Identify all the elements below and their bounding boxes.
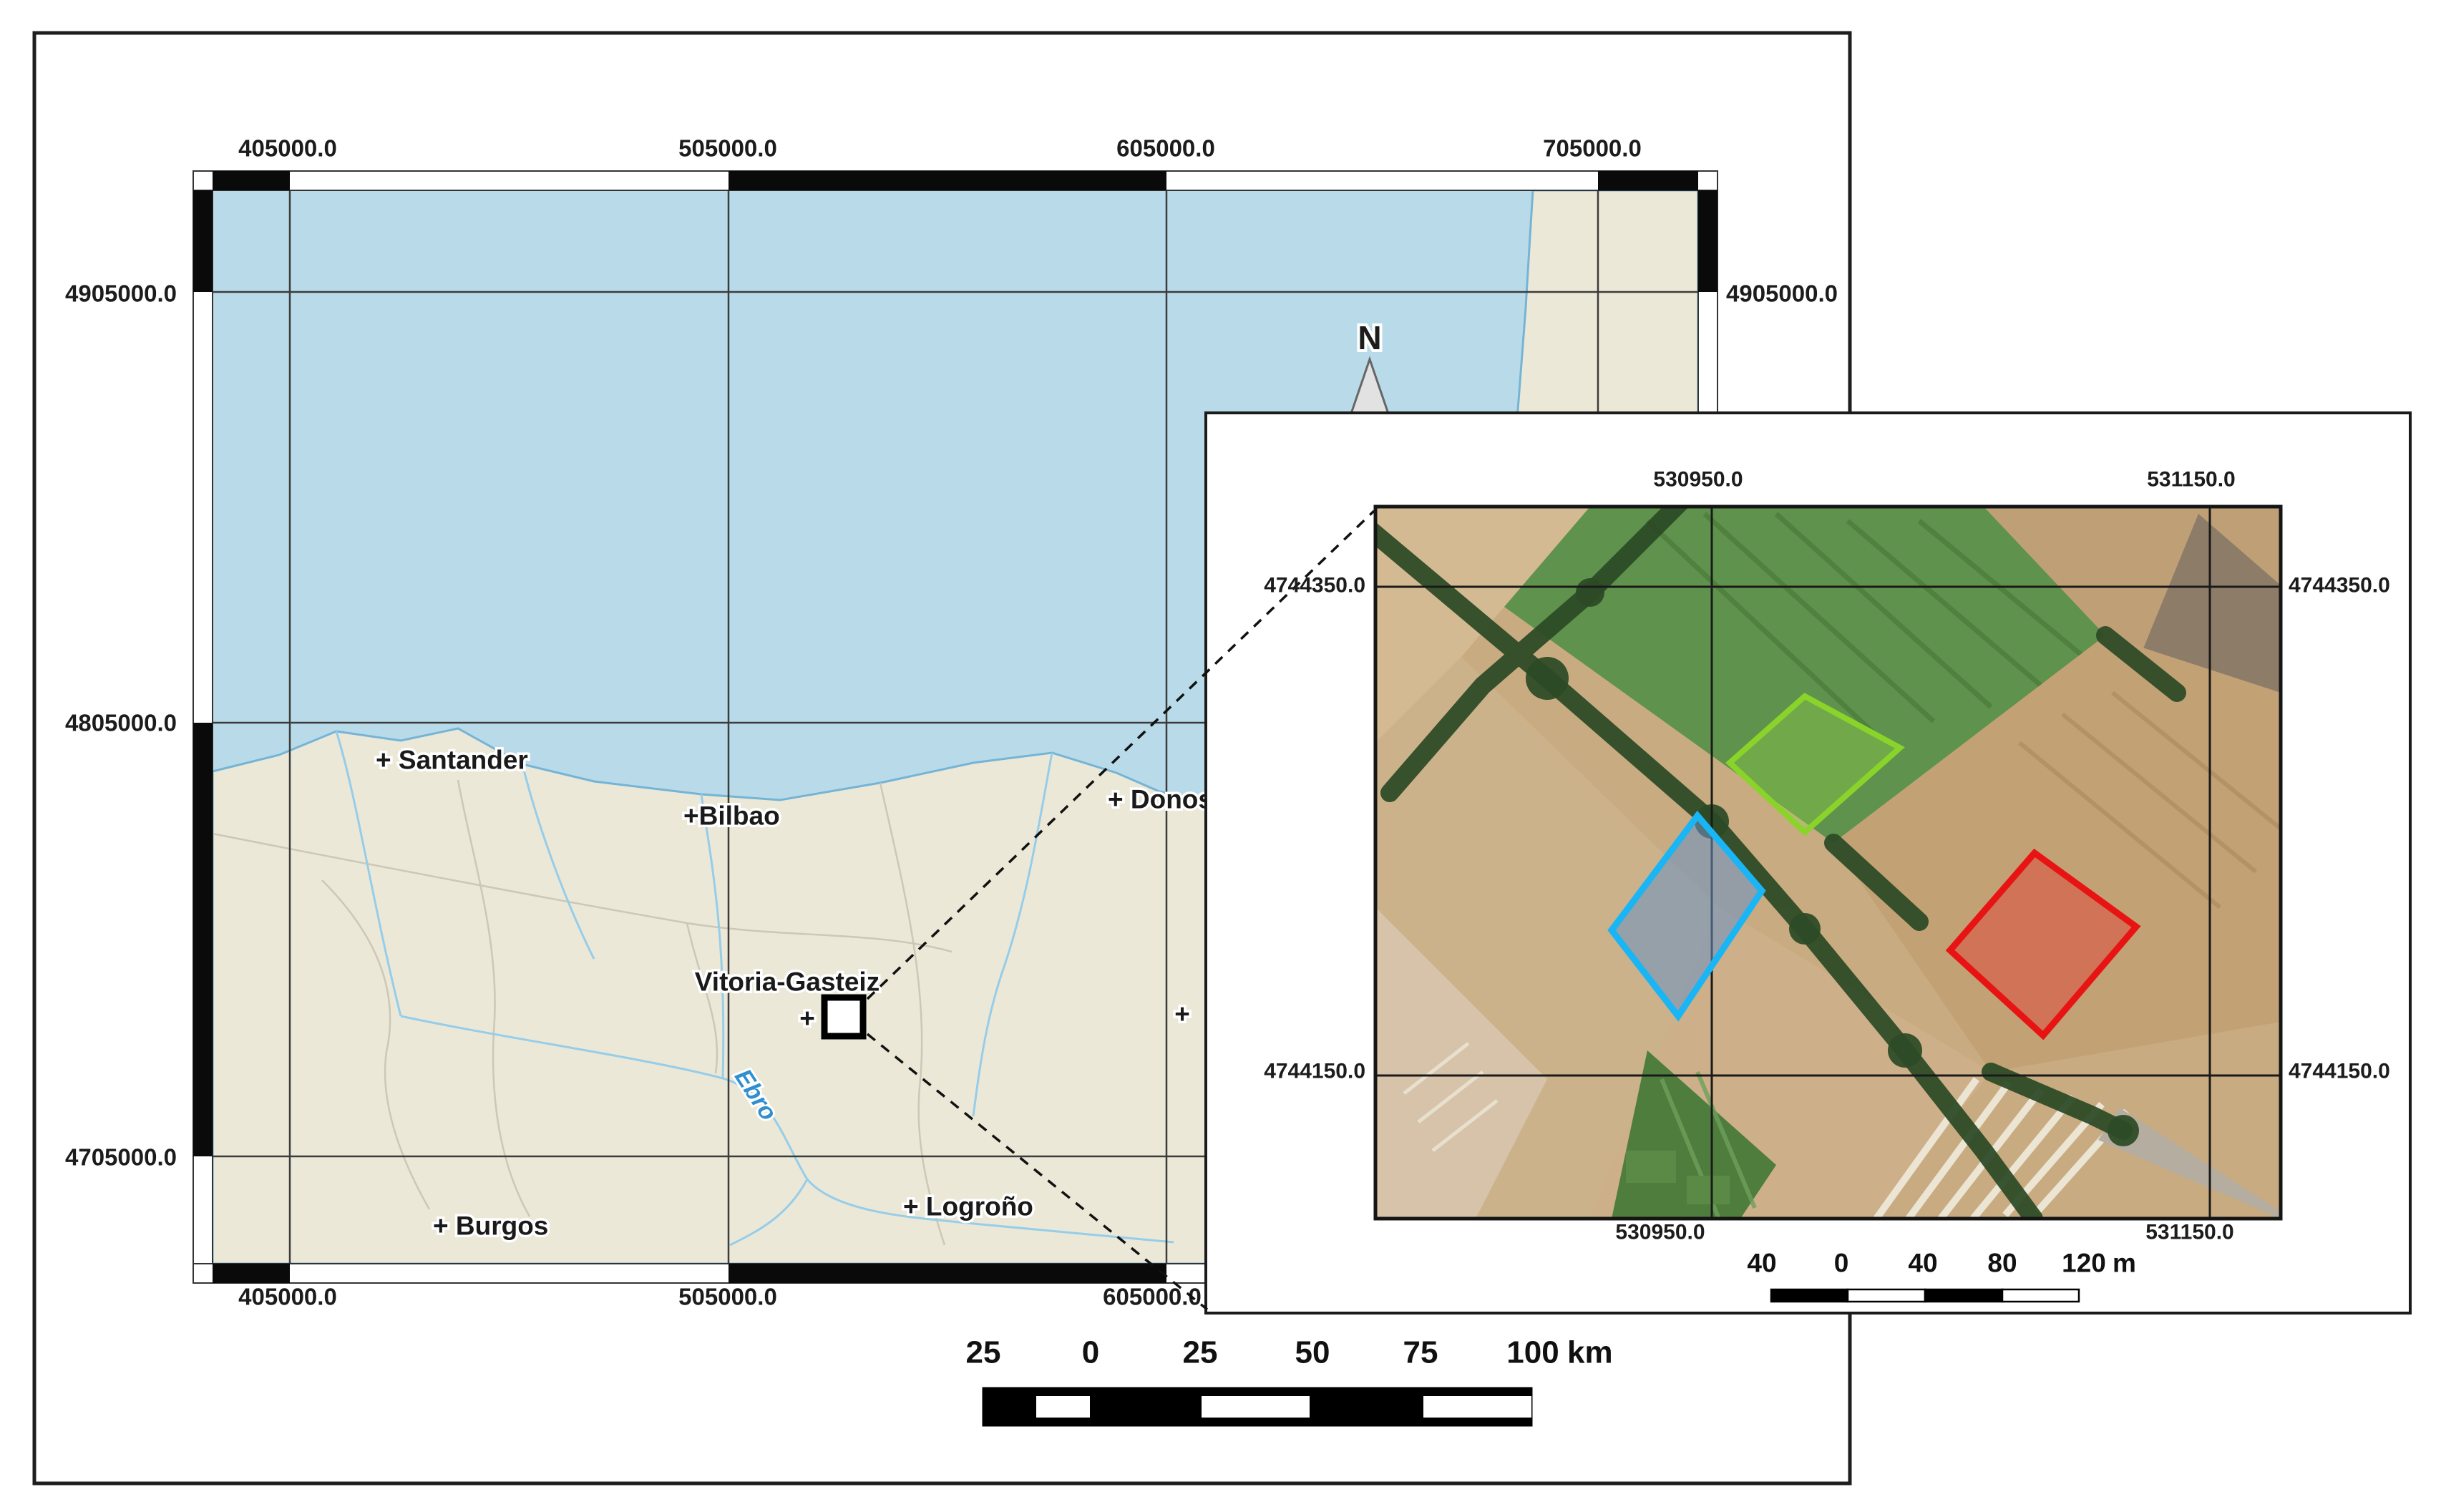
x-label-bottom-405000: 405000.0	[238, 1284, 337, 1310]
north-label: N	[1358, 319, 1381, 356]
study-area-marker	[824, 998, 863, 1036]
city-label-bilbao: +Bilbao	[683, 801, 780, 831]
inset-x-label-top-531150: 531150.0	[2147, 468, 2235, 492]
km-bar-window-2	[1202, 1396, 1310, 1418]
inset-aerial-photo	[1368, 499, 2281, 1219]
city-label-burgos: + Burgos	[433, 1211, 548, 1241]
inset-x-label-top-530950: 530950.0	[1653, 468, 1743, 492]
m-label-80: 80	[1987, 1249, 2017, 1278]
x-label-top-405000: 405000.0	[238, 135, 337, 162]
y-label-left-4705000: 4705000.0	[65, 1144, 177, 1171]
km-label-75: 75	[1403, 1335, 1438, 1370]
m-bar-seg1	[1771, 1289, 1848, 1302]
inset-y-label-right-4744150: 4744150.0	[2289, 1060, 2390, 1083]
m-bar-seg4	[2002, 1289, 2079, 1302]
m-bar-seg2	[1848, 1289, 1925, 1302]
figure-page: N 405000.0 505000.0 605000.0 705000.0 40…	[0, 0, 2441, 1512]
m-label-0: 0	[1834, 1249, 1849, 1278]
m-bar-seg3	[1925, 1289, 2002, 1302]
x-label-bottom-505000: 505000.0	[678, 1284, 777, 1310]
x-label-top-605000: 605000.0	[1116, 135, 1215, 162]
y-label-left-4905000: 4905000.0	[65, 281, 177, 307]
m-label-40: 40	[1908, 1249, 1937, 1278]
m-label-40L: 40	[1747, 1249, 1776, 1278]
km-label-25L: 25	[966, 1335, 1001, 1370]
x-label-top-705000: 705000.0	[1543, 135, 1642, 162]
km-label-100: 100	[1506, 1335, 1559, 1370]
inset-y-label-left-4744150: 4744150.0	[1264, 1060, 1365, 1083]
inset-y-label-left-4744350: 4744350.0	[1264, 574, 1365, 598]
city-label-logrono: + Logroño	[903, 1192, 1033, 1221]
km-bar-window-3	[1423, 1396, 1531, 1418]
inset-x-label-bottom-530950: 530950.0	[1615, 1221, 1705, 1244]
m-unit: m	[2113, 1249, 2136, 1278]
inset-y-label-right-4744350: 4744350.0	[2289, 574, 2390, 598]
km-bar-window-1	[1036, 1396, 1090, 1418]
inset-x-label-bottom-531150: 531150.0	[2145, 1221, 2233, 1244]
city-label-santander: + Santander	[376, 746, 528, 775]
km-label-50: 50	[1295, 1335, 1330, 1370]
x-label-bottom-605000: 605000.0	[1103, 1284, 1202, 1310]
city-label-vitoria-gasteiz: Vitoria-Gasteiz	[695, 967, 880, 997]
y-label-left-4805000: 4805000.0	[65, 710, 177, 736]
km-label-25: 25	[1183, 1335, 1218, 1370]
km-unit: km	[1567, 1335, 1613, 1370]
km-label-0: 0	[1082, 1335, 1099, 1370]
marker-cross: +	[799, 1004, 815, 1033]
city-cross-pamplona: +	[1174, 1000, 1190, 1029]
x-label-top-505000: 505000.0	[678, 135, 777, 162]
map-figure: N 405000.0 505000.0 605000.0 705000.0 40…	[0, 0, 2441, 1512]
y-label-right-4905000: 4905000.0	[1726, 281, 1838, 307]
m-label-120: 120	[2062, 1249, 2106, 1278]
